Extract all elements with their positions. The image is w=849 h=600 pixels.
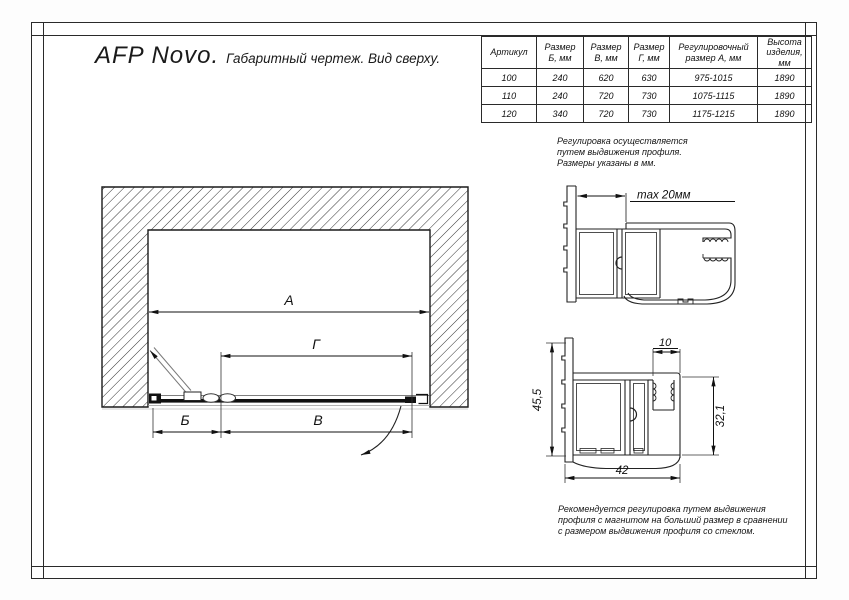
sheet-title: AFP Novo.Габаритный чертеж. Вид сверху. [95, 42, 440, 70]
col-size-g: Размер Г, мм [629, 37, 670, 69]
door-swing-arrow [361, 406, 401, 455]
dimension-inner-height: 32,1 [682, 377, 727, 455]
note-recommendation: Рекомендуется регулировка путем выдвижен… [558, 504, 788, 537]
cell: 1890 [758, 69, 812, 87]
cell: 620 [584, 69, 629, 87]
col-adjust-a: Регулировочный размер А, мм [670, 37, 758, 69]
cell: 975-1015 [670, 69, 758, 87]
inner-height-label: 32,1 [715, 405, 727, 427]
wall-profile-strip [562, 338, 573, 462]
open-door-panel [150, 348, 191, 394]
cell: 240 [537, 69, 584, 87]
note-adjustment: Регулировка осуществляется путем выдвиже… [557, 136, 688, 169]
table-row: 120 340 720 730 1175-1215 1890 [482, 105, 812, 123]
profile-section-dimensioned: 45,5 10 32,1 42 [522, 330, 757, 495]
dimension-b-label: Б [180, 412, 189, 428]
right-wall-profile [405, 397, 416, 404]
cell: 720 [584, 105, 629, 123]
cell: 120 [482, 105, 537, 123]
main-top-view-drawing: А Г Б В [80, 172, 480, 472]
cell: 630 [629, 69, 670, 87]
cell: 240 [537, 87, 584, 105]
dimension-a-label: А [283, 292, 293, 308]
frame-margin-line-left [43, 22, 44, 579]
dimension-max-offset: max 20мм [578, 190, 736, 223]
cell: 100 [482, 69, 537, 87]
dimension-profile-height: 45,5 [532, 343, 566, 456]
cell: 730 [629, 87, 670, 105]
slot-width-label: 10 [659, 337, 672, 349]
col-height: Высота изделия, мм [758, 37, 812, 69]
model-name: AFP Novo. [95, 42, 219, 69]
dimension-v: В [221, 412, 412, 432]
dimension-profile-width: 42 [565, 464, 680, 483]
magnet-profile-outline [624, 223, 735, 304]
cell: 1175-1215 [670, 105, 758, 123]
col-article: Артикул [482, 37, 537, 69]
table-row: 100 240 620 630 975-1015 1890 [482, 69, 812, 87]
wall-profile-strip [564, 186, 576, 302]
drawing-subtitle: Габаритный чертеж. Вид сверху. [226, 51, 440, 66]
table-row: 110 240 720 730 1075-1115 1890 [482, 87, 812, 105]
cell: 340 [537, 105, 584, 123]
frame-margin-line-bottom [31, 566, 817, 567]
max-offset-label: max 20мм [637, 190, 691, 202]
profile-height-label: 45,5 [532, 388, 544, 411]
dimension-g-label: Г [312, 336, 321, 352]
cell: 1890 [758, 87, 812, 105]
spec-table-header-row: Артикул Размер Б, мм Размер В, мм Размер… [482, 37, 812, 69]
door-handle-block [184, 392, 201, 401]
spec-table: Артикул Размер Б, мм Размер В, мм Размер… [481, 36, 812, 123]
cell: 1075-1115 [670, 87, 758, 105]
cell: 1890 [758, 105, 812, 123]
door-assembly [102, 394, 468, 410]
profile-section-top: max 20мм [545, 172, 770, 337]
cell: 720 [584, 87, 629, 105]
profile-width-label: 42 [616, 465, 629, 477]
dimension-a: А [149, 292, 429, 312]
col-size-b: Размер Б, мм [537, 37, 584, 69]
cell: 110 [482, 87, 537, 105]
cell: 730 [629, 105, 670, 123]
dimension-slot-width: 10 [653, 337, 680, 376]
dimension-b: Б [153, 408, 221, 438]
col-size-v: Размер В, мм [584, 37, 629, 69]
dimension-v-label: В [313, 412, 322, 428]
